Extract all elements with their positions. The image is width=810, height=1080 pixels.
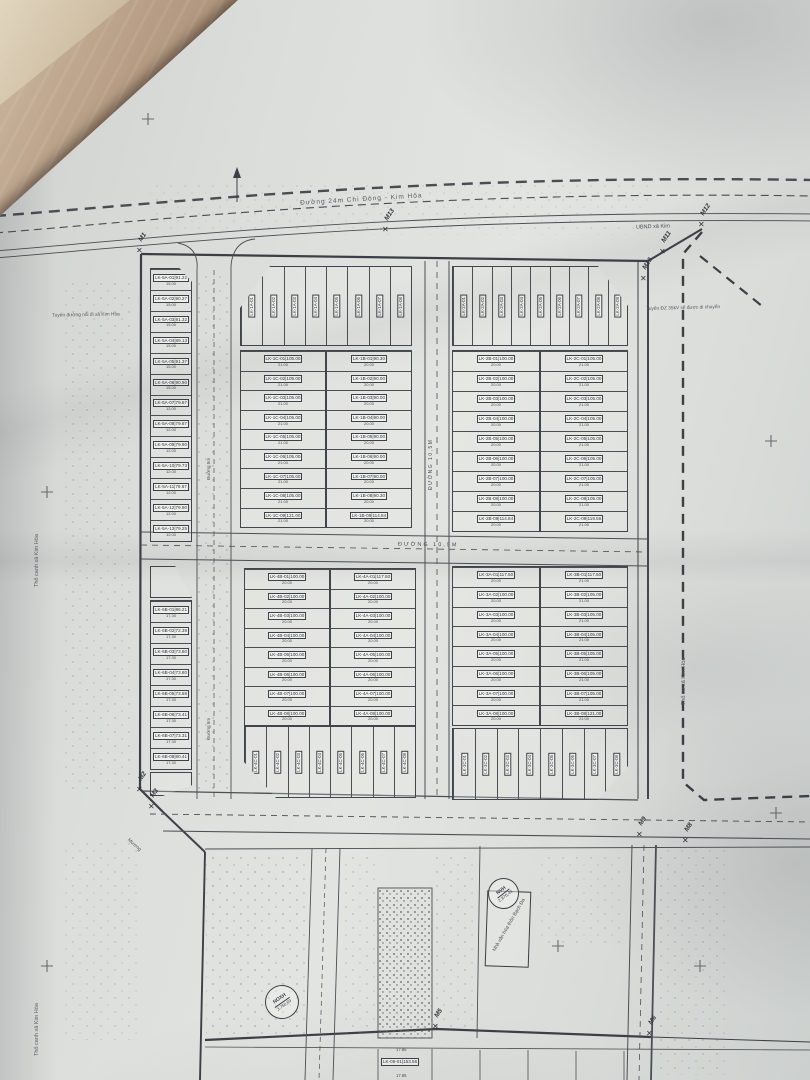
lot-width: 20.00 bbox=[491, 403, 501, 407]
lot-row: LK-5A-11|79.6712.00 bbox=[151, 478, 191, 499]
marker-m9: ✕M9 bbox=[636, 831, 646, 841]
lot-width: 21.00 bbox=[579, 423, 589, 427]
lot-width: 21.00 bbox=[278, 422, 288, 426]
lot-width: 20.00 bbox=[491, 619, 501, 623]
lot-row: LK-5A-03|91.3215.00 bbox=[151, 311, 191, 332]
lot-width: 20.00 bbox=[282, 600, 292, 604]
lot-row: LK-1C-03|105.0021.00 bbox=[241, 390, 325, 410]
road-label-5m-lower: Đường 5m bbox=[206, 685, 211, 740]
lot-row: LK-5A-12|79.9012.00 bbox=[151, 499, 191, 520]
lot-row: LK-1C-07|105.0021.00 bbox=[241, 468, 325, 488]
lot-cell: LK-4C-02 bbox=[266, 727, 287, 797]
lot-row: LK-5A-02|90.2715.00 bbox=[151, 290, 191, 311]
lot-width: 21.00 bbox=[278, 480, 288, 484]
block-lk-3c: LK-3C-01LK-3C-02LK-3C-03LK-3C-04LK-3C-05… bbox=[452, 728, 628, 800]
lot-label: LK-1A-02 bbox=[270, 295, 277, 318]
lot-label: LK-1A-06 bbox=[355, 295, 362, 318]
lot-width: 20.00 bbox=[364, 383, 374, 387]
lot-width: 21.00 bbox=[278, 519, 288, 523]
lot-row: LK-5A-08|79.8712.00 bbox=[151, 415, 191, 436]
lot-width: 20.00 bbox=[491, 579, 501, 583]
lot-row: LK-1C-08|105.0021.00 bbox=[241, 488, 325, 508]
marker-cross-icon: ✕ bbox=[432, 1023, 439, 1031]
lot-row: LK-2B-08|100.0020.00 bbox=[453, 491, 539, 511]
lot-width: 21.00 bbox=[579, 383, 589, 387]
lot-width: 17.30 bbox=[166, 677, 176, 681]
block-lk-6b: LK-6B-01|86.2117.30LK-6B-02|72.3917.30LK… bbox=[150, 600, 192, 770]
plan-linework bbox=[0, 0, 810, 1080]
lot-row: LK-2B-07|100.0020.00 bbox=[453, 471, 539, 491]
lot-width: 20.00 bbox=[282, 659, 292, 663]
lot-row: LK-4B-08|100.0020.00 bbox=[245, 706, 329, 726]
marker-m8: ✕M8 bbox=[682, 837, 692, 847]
lot-width: 21.00 bbox=[278, 461, 288, 465]
marker-m13: ✕M13 bbox=[382, 226, 392, 236]
lot-label: LK-2A-03 bbox=[498, 295, 505, 318]
lot-width: 12.00 bbox=[166, 428, 176, 432]
bottom-lot-width-bottom: 17.86 bbox=[396, 1073, 406, 1078]
lot-cell: LK-1A-08 bbox=[390, 267, 411, 345]
lot-label: LK-1A-07 bbox=[376, 295, 383, 318]
lot-cell: LK-3C-01 bbox=[453, 729, 475, 799]
lot-width: 20.00 bbox=[491, 638, 501, 642]
lot-width: 12.00 bbox=[166, 470, 176, 474]
lot-row: LK-1C-04|105.0021.00 bbox=[241, 410, 325, 430]
lot-row: LK-1B-03|90.0020.00 bbox=[327, 390, 411, 410]
block-lk-2a: LK-2A-01LK-2A-02LK-2A-03LK-2A-04LK-2A-05… bbox=[452, 266, 628, 346]
lot-width: 17.30 bbox=[166, 761, 176, 765]
lot-row: LK-1C-06|105.0021.00 bbox=[241, 449, 325, 469]
lot-width: 21.00 bbox=[579, 717, 589, 721]
lot-row: LK-4B-03|100.0020.00 bbox=[245, 608, 329, 628]
lot-row: LK-4A-03|100.0020.00 bbox=[331, 608, 415, 628]
lot-width: 20.00 bbox=[368, 639, 378, 643]
lot-width: 20.00 bbox=[364, 500, 374, 504]
lot-cell: LK-3C-06 bbox=[562, 729, 584, 799]
lot-width: 20.00 bbox=[491, 423, 501, 427]
lot-row: LK-3B-07|105.0021.00 bbox=[541, 686, 627, 706]
lot-width: 15.00 bbox=[166, 282, 176, 286]
lot-width: 20.00 bbox=[491, 503, 501, 507]
lot-row: LK-1B-08|90.3020.00 bbox=[327, 488, 411, 508]
lot-row: LK-4B-02|100.0020.00 bbox=[245, 589, 329, 609]
lot-width: 20.00 bbox=[364, 402, 374, 406]
bottom-lot-label: LK-06-01|153.56 bbox=[381, 1058, 419, 1066]
lot-label: LK-1A-04 bbox=[312, 295, 319, 318]
lot-width: 21.00 bbox=[579, 698, 589, 702]
lot-cell: LK-2A-05 bbox=[530, 267, 549, 345]
lot-row: LK-3A-02|100.0020.00 bbox=[453, 587, 539, 607]
lot-row: LK-6B-07|73.3117.30 bbox=[151, 727, 191, 748]
lot-width: 21.00 bbox=[278, 500, 288, 504]
marker-cross-icon: ✕ bbox=[659, 248, 666, 256]
lot-width: 21.00 bbox=[278, 402, 288, 406]
lot-row: LK-5A-10|79.7312.00 bbox=[151, 457, 191, 478]
lot-row: LK-5A-09|79.9012.00 bbox=[151, 436, 191, 457]
lot-label: LK-4C-07 bbox=[380, 751, 387, 774]
lot-row: LK-3B-08|121.0021.00 bbox=[541, 705, 627, 725]
lot-width: 17.30 bbox=[166, 698, 176, 702]
lot-width: 20.00 bbox=[282, 581, 292, 585]
lot-label: LK-4C-03 bbox=[295, 751, 302, 774]
lot-row: LK-3B-05|105.0021.00 bbox=[541, 646, 627, 666]
lot-width: 21.00 bbox=[579, 403, 589, 407]
lot-width: 21.00 bbox=[579, 658, 589, 662]
lot-row: LK-6B-02|72.3917.30 bbox=[151, 622, 191, 643]
green-strip bbox=[378, 888, 432, 1038]
marker-m3: ✕M3 bbox=[148, 803, 158, 813]
lot-row: LK-1C-02|105.0021.00 bbox=[241, 371, 325, 391]
lot-label: LK-3C-05 bbox=[548, 753, 555, 776]
lot-width: 20.00 bbox=[282, 678, 292, 682]
lot-width: 21.00 bbox=[579, 443, 589, 447]
lot-width: 12.00 bbox=[166, 491, 176, 495]
lot-cell: LK-2A-04 bbox=[511, 267, 530, 345]
lot-row: LK-5A-07|79.8712.00 bbox=[151, 395, 191, 416]
marker-cross-icon: ✕ bbox=[698, 221, 705, 229]
marker-m2: ✕M2 bbox=[136, 786, 146, 796]
lot-width: 17.30 bbox=[166, 719, 176, 723]
lot-width: 21.00 bbox=[278, 441, 288, 445]
lot-row: LK-4A-02|100.0020.00 bbox=[331, 589, 415, 609]
lot-label: LK-1A-05 bbox=[333, 295, 340, 318]
bottom-lot-width-top: 17.86 bbox=[396, 1047, 406, 1052]
lot-label: LK-1A-03 bbox=[291, 295, 298, 318]
lot-row: LK-1C-05|105.0021.00 bbox=[241, 429, 325, 449]
lot-width: 20.00 bbox=[282, 620, 292, 624]
lot-cell: LK-4C-06 bbox=[351, 727, 372, 797]
block-lk-3b: LK-3B-01|117.5021.00LK-3B-02|105.0021.00… bbox=[540, 566, 628, 726]
lot-row: LK-3A-05|100.0020.00 bbox=[453, 646, 539, 666]
lot-row: LK-3A-08|100.0020.00 bbox=[453, 705, 539, 725]
lot-row: LK-2B-06|100.0020.00 bbox=[453, 451, 539, 471]
lot-row: LK-4A-05|100.0020.00 bbox=[331, 647, 415, 667]
lot-row: LK-4A-07|100.0020.00 bbox=[331, 686, 415, 706]
lot-width: 21.00 bbox=[579, 638, 589, 642]
lot-label: LK-1A-08 bbox=[397, 295, 404, 318]
lot-row: LK-2C-08|105.0021.00 bbox=[541, 491, 627, 511]
lot-width: 20.00 bbox=[364, 519, 374, 523]
block-lk-1c: LK-1C-01|105.0021.00LK-1C-02|105.0021.00… bbox=[240, 350, 326, 528]
lot-width: 20.00 bbox=[491, 523, 501, 527]
lot-cell: LK-4C-07 bbox=[373, 727, 394, 797]
lot-label: LK-3C-04 bbox=[526, 753, 533, 776]
lot-row: LK-1B-09|114.8420.00 bbox=[327, 508, 411, 528]
marker-cross-icon: ✕ bbox=[148, 803, 155, 811]
lot-width: 20.00 bbox=[491, 599, 501, 603]
lot-row: LK-6B-01|86.2117.30 bbox=[151, 601, 191, 622]
lot-width: 12.00 bbox=[166, 407, 176, 411]
lot-row: LK-3B-02|105.0021.00 bbox=[541, 587, 627, 607]
lot-label: LK-2A-02 bbox=[479, 295, 486, 318]
road-label-5m-upper: Đường 5m bbox=[206, 425, 211, 480]
lot-cell: LK-1A-05 bbox=[326, 267, 347, 345]
block-lk-1b: LK-1B-01|90.3020.00LK-1B-02|90.0020.00LK… bbox=[326, 350, 412, 528]
plan-paper: LK-5A-01|91.2215.00LK-5A-02|90.2715.00LK… bbox=[0, 0, 810, 1080]
land-label-left-bottom: Thổ canh xã Kim Hòa bbox=[34, 926, 40, 1056]
lot-label: LK-2A-04 bbox=[518, 295, 525, 318]
lot-width: 12.00 bbox=[166, 512, 176, 516]
lot-row: LK-6B-06|73.4117.30 bbox=[151, 706, 191, 727]
block-lk-5a: LK-5A-01|91.2215.00LK-5A-02|90.2715.00LK… bbox=[150, 268, 192, 542]
lot-row: LK-6B-04|73.8017.30 bbox=[151, 664, 191, 685]
land-label-right: Thổ cư xã Kim Hòa bbox=[681, 590, 687, 705]
lot-label: LK-2A-01 bbox=[460, 295, 467, 318]
lot-label: LK-4C-06 bbox=[359, 751, 366, 774]
block-lk-2c: LK-2C-01|105.0021.00LK-2C-02|105.0021.00… bbox=[540, 350, 628, 532]
lot-label: LK-2A-06 bbox=[556, 295, 563, 318]
lot-width: 15.00 bbox=[166, 365, 176, 369]
lot-row: LK-1C-01|105.0021.00 bbox=[241, 351, 325, 371]
lot-width: 12.00 bbox=[166, 533, 176, 537]
lot-width: 20.00 bbox=[368, 678, 378, 682]
lot-label: LK-4C-02 bbox=[274, 751, 281, 774]
marker-cross-icon: ✕ bbox=[646, 1030, 653, 1038]
lot-label: LK-3C-03 bbox=[504, 753, 511, 776]
lot-width: 15.00 bbox=[166, 344, 176, 348]
lot-width: 20.00 bbox=[368, 698, 378, 702]
lot-width: 20.00 bbox=[491, 678, 501, 682]
lot-width: 21.00 bbox=[579, 579, 589, 583]
marker-m12: ✕M12 bbox=[698, 221, 708, 231]
marker-m11: ✕M11 bbox=[659, 248, 669, 258]
lot-width: 20.00 bbox=[368, 581, 378, 585]
block-lk-4c: LK-4C-01LK-4C-02LK-4C-03LK-4C-04LK-4C-05… bbox=[244, 726, 416, 798]
lot-row: LK-2C-02|105.0021.00 bbox=[541, 371, 627, 391]
block-lk-1a: LK-1A-01LK-1A-02LK-1A-03LK-1A-04LK-1A-05… bbox=[240, 266, 412, 346]
lot-row: LK-1B-05|90.0020.00 bbox=[327, 429, 411, 449]
lot-row: LK-3A-06|100.0020.00 bbox=[453, 666, 539, 686]
marker-cross-icon: ✕ bbox=[382, 226, 389, 234]
lot-row: LK-4B-05|100.0020.00 bbox=[245, 647, 329, 667]
lot-row: LK-2C-05|105.0021.00 bbox=[541, 431, 627, 451]
lot-row: LK-4B-06|100.0020.00 bbox=[245, 667, 329, 687]
lot-row: LK-3A-04|100.0020.00 bbox=[453, 626, 539, 646]
lot-row: LK-1B-07|90.0020.00 bbox=[327, 468, 411, 488]
lot-row: LK-4A-06|100.0020.00 bbox=[331, 667, 415, 687]
lot-label: LK-2A-08 bbox=[595, 295, 602, 318]
lot-cell: LK-2A-07 bbox=[569, 267, 588, 345]
road-label-middle: Đường 10,5m bbox=[398, 542, 459, 549]
lot-row: LK-2C-07|105.0021.00 bbox=[541, 471, 627, 491]
lot-row: LK-2C-06|105.0021.00 bbox=[541, 451, 627, 471]
lot-row: LK-2C-03|105.0021.00 bbox=[541, 391, 627, 411]
lot-row: LK-4B-01|100.0020.00 bbox=[245, 569, 329, 589]
lot-cell: LK-4C-05 bbox=[330, 727, 351, 797]
lot-cell: LK-4C-03 bbox=[288, 727, 309, 797]
lot-row: LK-4B-04|100.0020.00 bbox=[245, 628, 329, 648]
lot-row: LK-2B-03|100.0020.00 bbox=[453, 391, 539, 411]
lot-width: 21.00 bbox=[278, 383, 288, 387]
lot-width: 20.00 bbox=[368, 600, 378, 604]
lot-label: LK-3C-01 bbox=[461, 753, 468, 776]
block-lk-4b: LK-4B-01|100.0020.00LK-4B-02|100.0020.00… bbox=[244, 568, 330, 726]
lot-width: 17.30 bbox=[166, 656, 176, 660]
lot-cell: LK-2A-01 bbox=[453, 267, 472, 345]
lot-width: 17.30 bbox=[166, 635, 176, 639]
lot-label: LK-2A-09 bbox=[614, 295, 621, 318]
lot-width: 20.00 bbox=[491, 383, 501, 387]
lot-label: LK-4C-05 bbox=[337, 751, 344, 774]
marker-m6: ✕M6 bbox=[646, 1030, 656, 1040]
lot-row: LK-3B-06|105.0021.00 bbox=[541, 666, 627, 686]
marker-cross-icon: ✕ bbox=[136, 786, 143, 794]
marker-cross-icon: ✕ bbox=[682, 837, 689, 845]
lot-width: 20.00 bbox=[364, 422, 374, 426]
lot-cell: LK-1A-03 bbox=[284, 267, 305, 345]
lot-width: 15.00 bbox=[166, 303, 176, 307]
lot-cell: LK-4C-04 bbox=[309, 727, 330, 797]
lot-label: LK-3C-02 bbox=[482, 753, 489, 776]
lot-row: LK-2B-09|114.8420.00 bbox=[453, 511, 539, 531]
marker-cross-icon: ✕ bbox=[136, 247, 143, 255]
lot-row: LK-1B-04|90.0020.00 bbox=[327, 410, 411, 430]
lot-label: LK-2A-05 bbox=[537, 295, 544, 318]
lot-cell: LK-3C-07 bbox=[584, 729, 606, 799]
lot-width: 20.00 bbox=[491, 443, 501, 447]
lot-width: 21.00 bbox=[278, 363, 288, 367]
lot-row: LK-3B-03|105.0021.00 bbox=[541, 607, 627, 627]
lot-width: 20.00 bbox=[364, 461, 374, 465]
lot-width: 20.00 bbox=[491, 658, 501, 662]
lot-label: LK-4C-01 bbox=[252, 751, 259, 774]
lot-width: 20.00 bbox=[368, 717, 378, 721]
lot-width: 21.00 bbox=[579, 523, 589, 527]
lot-width: 12.00 bbox=[166, 449, 176, 453]
lot-width: 21.00 bbox=[579, 503, 589, 507]
lot-label: LK-2A-07 bbox=[575, 295, 582, 318]
lot-width: 21.00 bbox=[579, 599, 589, 603]
lot-width: 20.00 bbox=[491, 483, 501, 487]
lot-cell: LK-2A-02 bbox=[472, 267, 491, 345]
lot-row: LK-2C-01|105.0021.00 bbox=[541, 351, 627, 371]
lot-width: 15.00 bbox=[166, 386, 176, 390]
lot-width: 20.00 bbox=[491, 463, 501, 467]
lot-label: LK-3C-07 bbox=[591, 753, 598, 776]
lot-cell: LK-3C-03 bbox=[497, 729, 519, 799]
land-label-left-mid: Thổ canh xã Kim Hòa bbox=[34, 462, 40, 587]
lot-cell: LK-3C-05 bbox=[540, 729, 562, 799]
lot-row: LK-6B-05|73.5817.30 bbox=[151, 685, 191, 706]
lot-width: 21.00 bbox=[579, 483, 589, 487]
lot-row: LK-5A-04|89.1315.00 bbox=[151, 332, 191, 353]
lot-row: LK-3B-01|117.5021.00 bbox=[541, 567, 627, 587]
lot-row: LK-2B-04|100.0020.00 bbox=[453, 411, 539, 431]
photo-of-plan: LK-5A-01|91.2215.00LK-5A-02|90.2715.00LK… bbox=[0, 0, 810, 1080]
lot-width: 15.00 bbox=[166, 323, 176, 327]
lot-row: LK-5A-05|91.3715.00 bbox=[151, 353, 191, 374]
lot-width: 20.00 bbox=[282, 698, 292, 702]
lot-row: LK-3A-03|100.0020.00 bbox=[453, 607, 539, 627]
lot-width: 17.30 bbox=[166, 614, 176, 618]
lot-row: LK-2C-09|119.5621.00 bbox=[541, 511, 627, 531]
lot-row: LK-6B-03|73.8017.30 bbox=[151, 643, 191, 664]
lot-label: LK-3C-08 bbox=[613, 753, 620, 776]
lot-row: LK-4B-07|100.0020.00 bbox=[245, 686, 329, 706]
lot-cell: LK-1A-07 bbox=[369, 267, 390, 345]
lot-row: LK-1C-09|121.0021.00 bbox=[241, 508, 325, 528]
lot-row: LK-2B-02|100.0020.00 bbox=[453, 371, 539, 391]
block-lk-2b: LK-2B-01|100.0020.00LK-2B-02|100.0020.00… bbox=[452, 350, 540, 532]
lot-width: 21.00 bbox=[579, 619, 589, 623]
lot-width: 20.00 bbox=[491, 698, 501, 702]
lot-label: LK-1A-01 bbox=[248, 295, 255, 318]
lot-width: 20.00 bbox=[491, 717, 501, 721]
lot-row: LK-3B-04|105.0021.00 bbox=[541, 626, 627, 646]
lot-width: 20.00 bbox=[282, 639, 292, 643]
lot-row: LK-5A-13|79.2512.00 bbox=[151, 520, 191, 541]
lot-width: 20.00 bbox=[282, 717, 292, 721]
lot-width: 21.00 bbox=[579, 678, 589, 682]
lot-width: 21.00 bbox=[579, 463, 589, 467]
lot-width: 20.00 bbox=[491, 363, 501, 367]
lot-cell: LK-2A-08 bbox=[588, 267, 607, 345]
lot-row: LK-2C-04|105.0021.00 bbox=[541, 411, 627, 431]
lot-width: 21.00 bbox=[579, 363, 589, 367]
marker-m5: ✕M5 bbox=[432, 1023, 442, 1033]
lot-width: 20.00 bbox=[364, 441, 374, 445]
lot-row: LK-4A-01|117.5020.00 bbox=[331, 569, 415, 589]
lot-label: LK-4C-08 bbox=[401, 751, 408, 774]
lot-row: LK-5A-06|90.9015.00 bbox=[151, 374, 191, 395]
lot-row: LK-4A-04|100.0020.00 bbox=[331, 628, 415, 648]
lot-row: LK-1B-01|90.3020.00 bbox=[327, 351, 411, 371]
marker-cross-icon: ✕ bbox=[636, 831, 643, 839]
lot-width: 20.00 bbox=[364, 480, 374, 484]
road-label-central-vertical: Đường 10,5m bbox=[428, 400, 434, 490]
ubnd-label: UBND xã Kim bbox=[636, 223, 670, 230]
lot-row: LK-1B-02|90.0020.00 bbox=[327, 371, 411, 391]
marker-cross-icon: ✕ bbox=[640, 275, 647, 283]
block-lk-3a: LK-3A-01|117.5020.00LK-3A-02|100.0020.00… bbox=[452, 566, 540, 726]
lot-row: LK-3A-07|100.0020.00 bbox=[453, 686, 539, 706]
block-lk-4a: LK-4A-01|117.5020.00LK-4A-02|100.0020.00… bbox=[330, 568, 416, 726]
lot-row: LK-3A-01|117.5020.00 bbox=[453, 567, 539, 587]
lot-cell: LK-3C-04 bbox=[518, 729, 540, 799]
lot-row: LK-2B-05|100.0020.00 bbox=[453, 431, 539, 451]
lot-cell: LK-3C-02 bbox=[475, 729, 497, 799]
lot-row: LK-4A-08|100.0020.00 bbox=[331, 706, 415, 726]
lot-cell: LK-1A-06 bbox=[347, 267, 368, 345]
lot-cell: LK-1A-04 bbox=[305, 267, 326, 345]
lot-row: LK-6B-08|80.4117.30 bbox=[151, 748, 191, 769]
marker-m10: ✕M10 bbox=[640, 275, 650, 285]
lot-cell: LK-1A-02 bbox=[262, 267, 283, 345]
lot-row: LK-2B-01|100.0020.00 bbox=[453, 351, 539, 371]
lot-row: LK-1B-06|90.0020.00 bbox=[327, 449, 411, 469]
lot-width: 20.00 bbox=[368, 659, 378, 663]
lot-label: LK-3C-06 bbox=[569, 753, 576, 776]
lot-cell: LK-2A-06 bbox=[550, 267, 569, 345]
lot-cell: LK-2A-03 bbox=[492, 267, 511, 345]
power-line-corridor bbox=[683, 232, 810, 800]
lot-width: 17.30 bbox=[166, 740, 176, 744]
lot-width: 20.00 bbox=[368, 620, 378, 624]
lot-cell: LK-4C-08 bbox=[394, 727, 415, 797]
lot-label: LK-4C-04 bbox=[316, 751, 323, 774]
marker-m1: ✕M1 bbox=[136, 247, 146, 257]
lot-width: 20.00 bbox=[364, 363, 374, 367]
